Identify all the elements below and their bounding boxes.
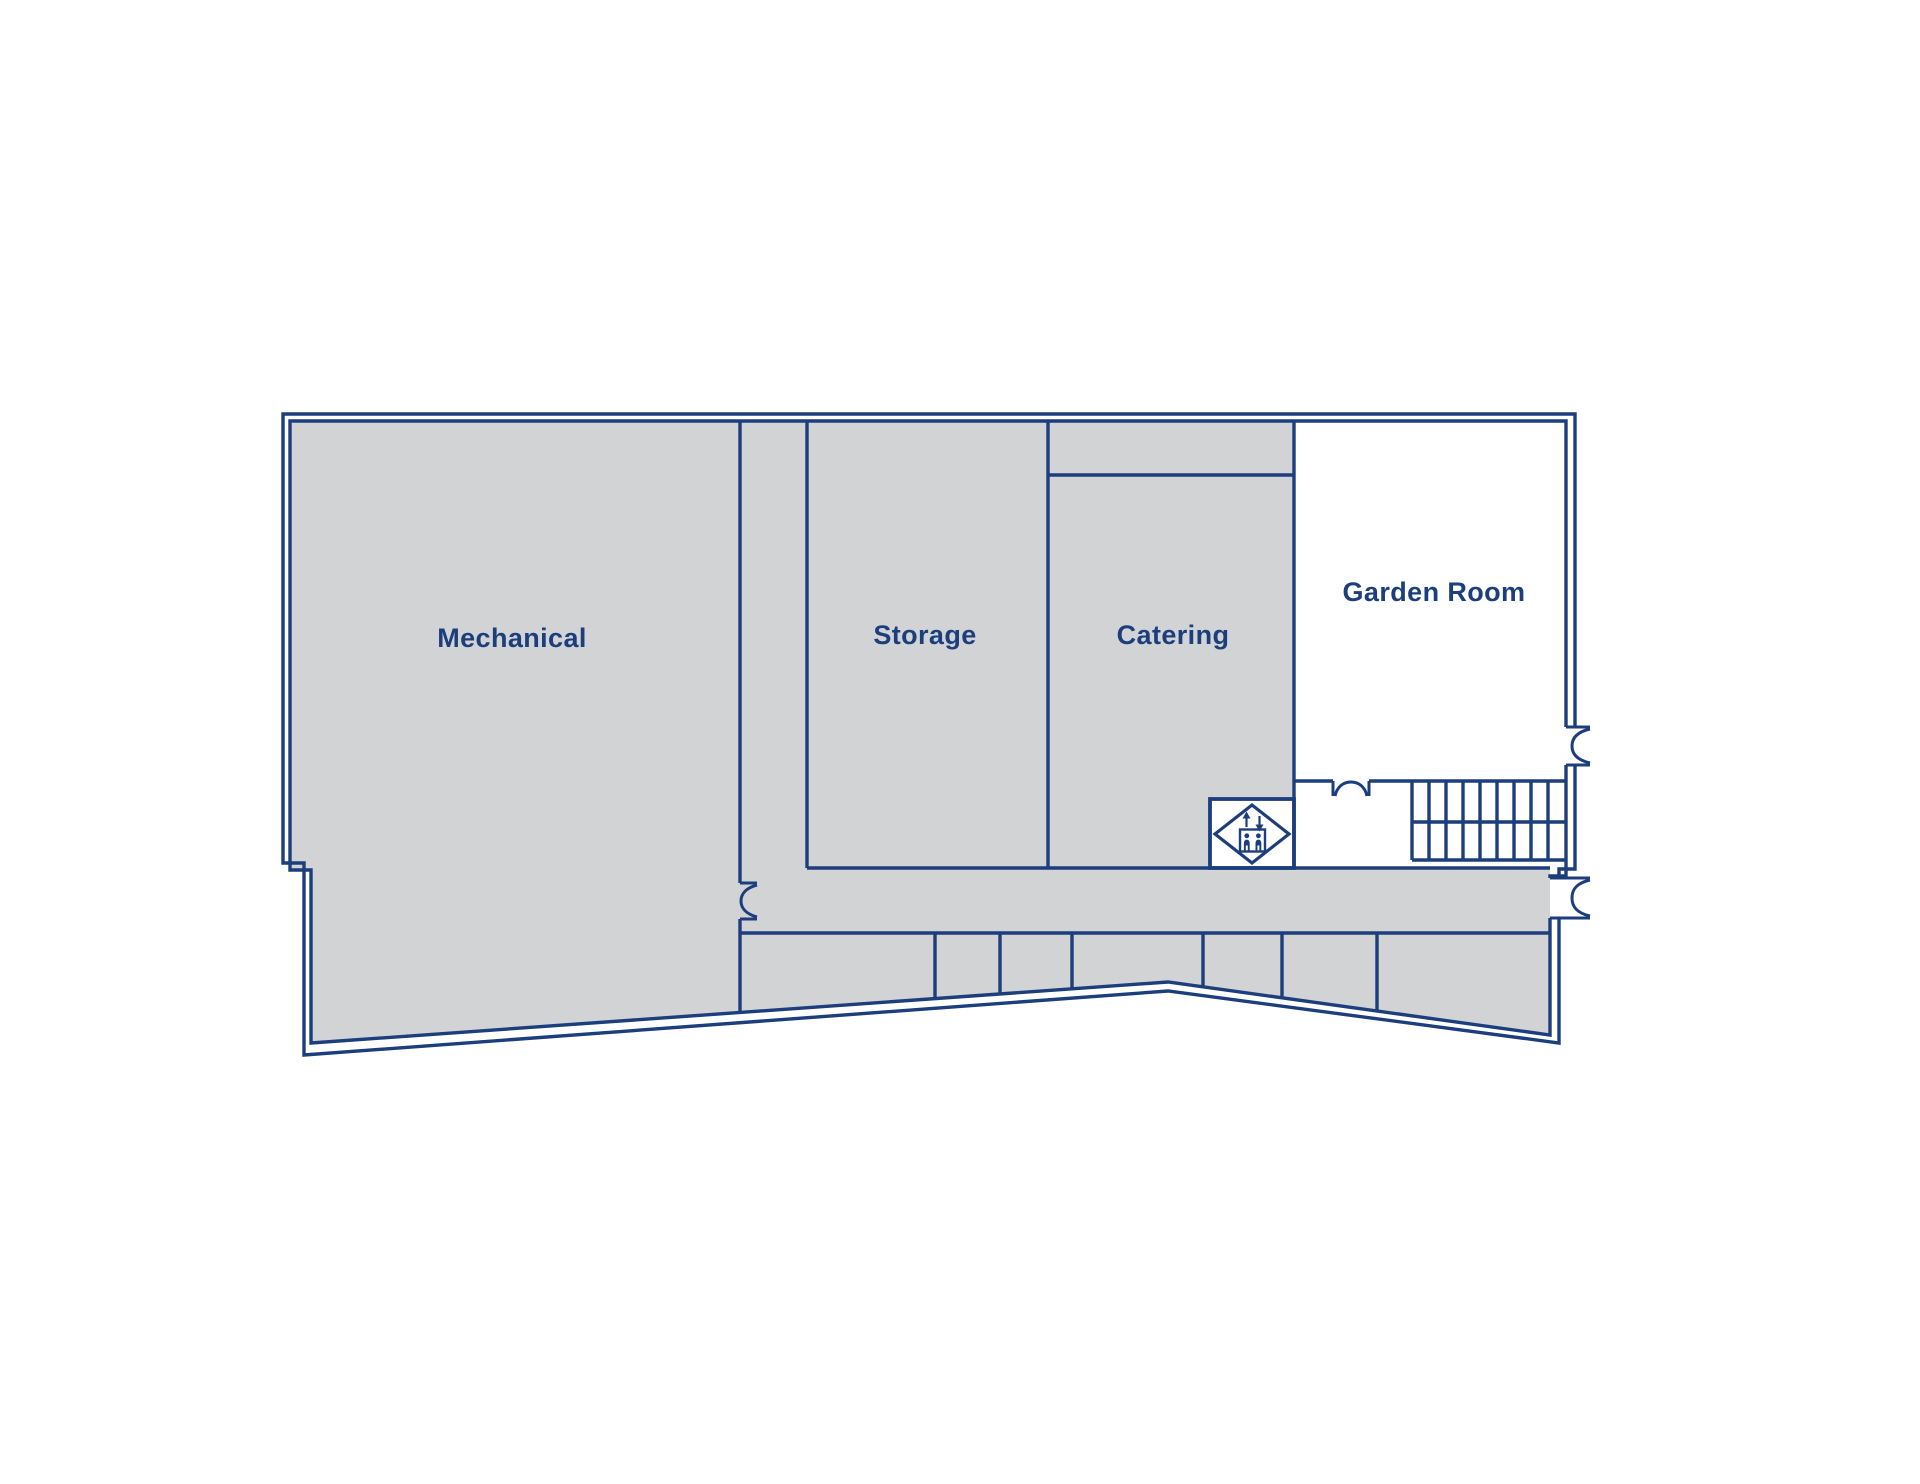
stairs-icon (1412, 781, 1566, 860)
door-icon-corridor-exterior (1550, 878, 1590, 918)
door-icon-garden-exterior (1566, 727, 1590, 765)
floor-plan: Mechanical Storage Catering Garden Room (0, 0, 1920, 1484)
annex-box (1157, 828, 1202, 868)
label-garden-room: Garden Room (1343, 577, 1526, 607)
corridor (740, 868, 1550, 933)
label-storage: Storage (873, 620, 976, 650)
door-icon-garden-room (1333, 781, 1369, 796)
room-above-catering (1048, 421, 1294, 475)
floor-plan-page: Mechanical Storage Catering Garden Room (0, 0, 1920, 1484)
room-mechanical (291, 421, 740, 1043)
label-mechanical: Mechanical (437, 623, 587, 653)
label-catering: Catering (1117, 620, 1230, 650)
corridor-vertical (740, 421, 807, 868)
